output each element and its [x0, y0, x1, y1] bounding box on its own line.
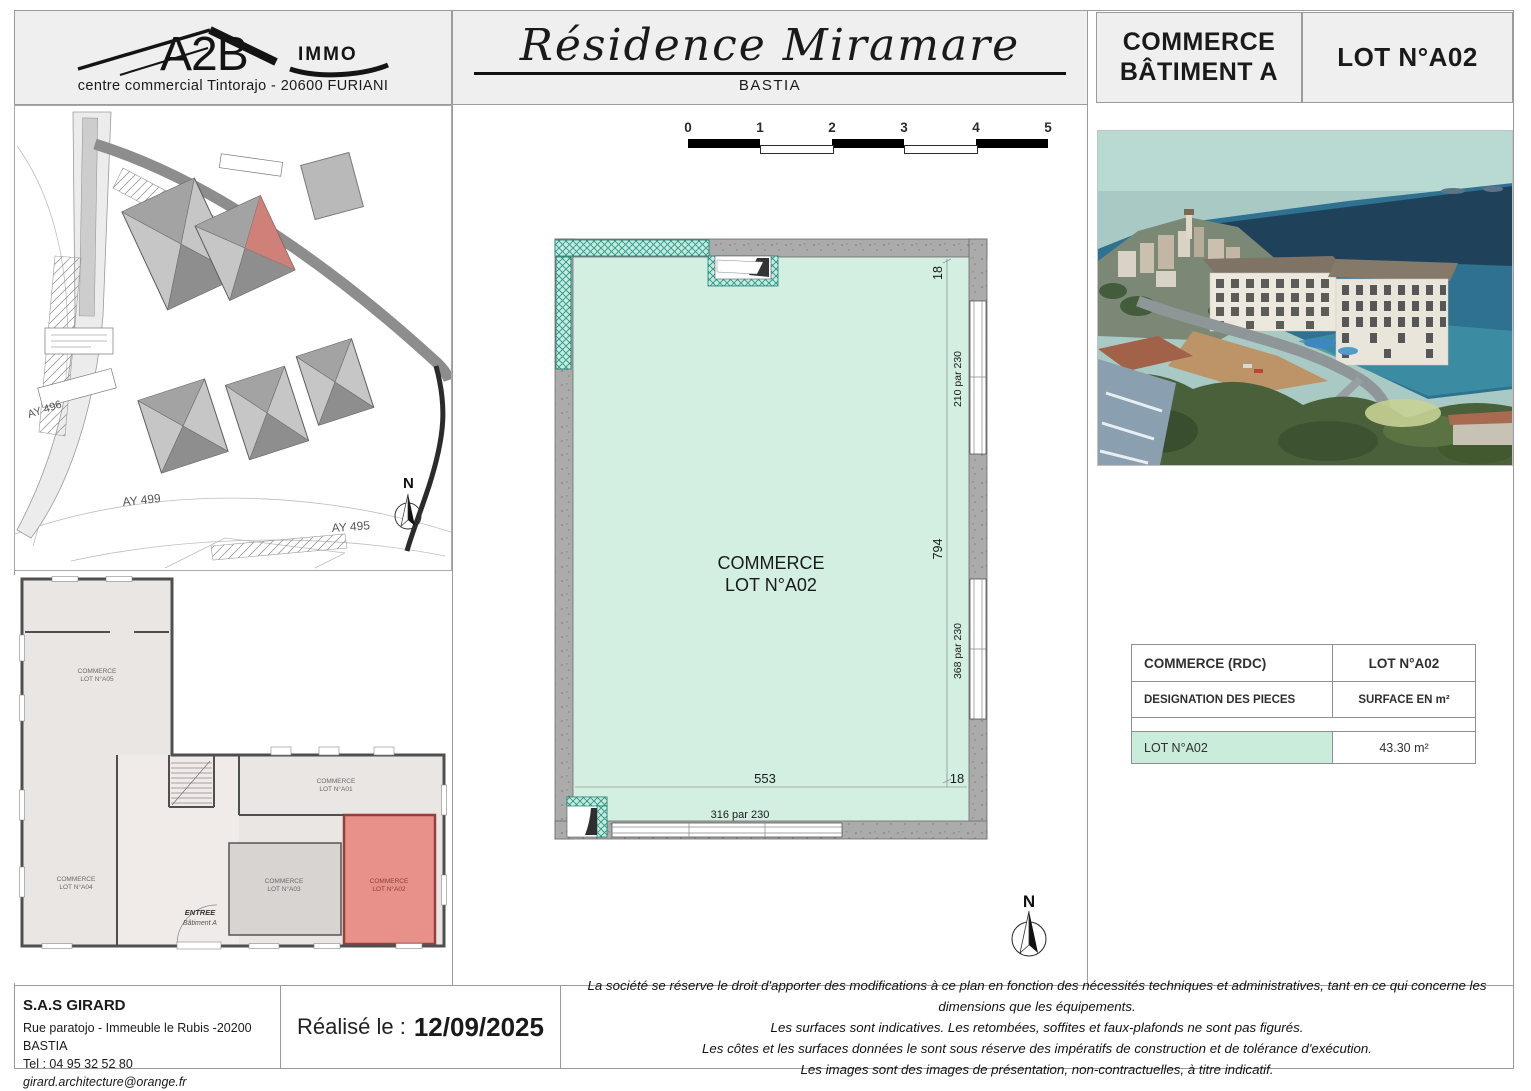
- label-a05-l2: LOT N°A05: [80, 675, 114, 683]
- render-sky: [1098, 131, 1513, 191]
- dim-794: 794: [931, 539, 945, 560]
- disclaimer-line-4: Les images sont des images de présentati…: [561, 1059, 1513, 1080]
- architect-email: girard.architecture@orange.fr: [23, 1073, 280, 1091]
- table-col-surface: SURFACE EN m²: [1332, 681, 1476, 718]
- architect-phone: Tel : 04 95 32 52 80: [23, 1055, 280, 1073]
- scale-seg-white-1: [760, 145, 834, 154]
- building-gray: [301, 152, 364, 219]
- date-block: Réalisé le : 12/09/2025: [280, 985, 561, 1069]
- window-right-top: [970, 301, 986, 454]
- project-3d-render: [1097, 130, 1513, 466]
- building-label-box: COMMERCE BÂTIMENT A: [1096, 12, 1302, 103]
- compass-needle-filled: [1029, 911, 1038, 953]
- table-title-left: COMMERCE (RDC): [1131, 644, 1333, 682]
- room-a05: [22, 579, 172, 755]
- project-title: Résidence Miramare: [520, 24, 1020, 68]
- label-a02-l1: COMMERCE: [370, 878, 409, 885]
- label-a01-l2: LOT N°A01: [319, 785, 353, 793]
- table-header-row: DESIGNATION DES PIECES SURFACE EN m²: [1131, 681, 1476, 718]
- project-title-panel: Résidence Miramare BASTIA: [452, 10, 1088, 105]
- label-a05-l1: COMMERCE: [78, 668, 117, 675]
- disclaimer-line-3: Les côtes et les surfaces données le son…: [561, 1038, 1513, 1059]
- lot-floor-area: [573, 257, 969, 821]
- compass-needle-outline: [1020, 911, 1029, 953]
- date-value: 12/09/2025: [414, 1012, 544, 1043]
- overview-plan-drawing: COMMERCE LOT N°A05 COMMERCE LOT N°A04 CO…: [14, 575, 452, 983]
- architect-address: Rue paratojo - Immeuble le Rubis -20200 …: [23, 1019, 280, 1055]
- logo-immo-text: IMMO: [298, 44, 358, 65]
- label-a04-l2: LOT N°A04: [59, 883, 93, 891]
- top-duct-notch: [708, 256, 778, 286]
- plan-north-label: N: [1023, 893, 1035, 911]
- window-label-368: 368 par 230: [952, 623, 964, 679]
- architect-company: S.A.S GIRARD: [23, 995, 280, 1017]
- scale-tick-3: 3: [900, 120, 908, 135]
- table-row: LOT N°A02 43.30 m²: [1131, 731, 1476, 764]
- table-cell-surface: 43.30 m²: [1332, 731, 1476, 764]
- table-title-row: COMMERCE (RDC) LOT N°A02: [1131, 644, 1476, 682]
- scale-tick-1: 1: [756, 120, 764, 135]
- plan-north-compass: N: [1003, 893, 1055, 965]
- architect-info-block: S.A.S GIRARD Rue paratojo - Immeuble le …: [14, 985, 281, 1069]
- label-a02-l2: LOT N°A02: [372, 885, 406, 893]
- scale-seg-black-1: [688, 139, 760, 148]
- lot-label: LOT N°A02: [1337, 42, 1478, 73]
- label-a03-l2: LOT N°A03: [267, 885, 301, 893]
- building-label-line1: COMMERCE: [1120, 28, 1278, 58]
- scale-seg-black-3: [976, 139, 1048, 148]
- entrance-label-1: ENTREE: [185, 908, 216, 917]
- window-bottom: [612, 823, 842, 837]
- column-divider-right: [1087, 10, 1088, 986]
- scale-bar: 0 1 2 3 4 5: [688, 120, 1052, 168]
- disclaimer-line-2: Les surfaces sont indicatives. Les retom…: [561, 1017, 1513, 1038]
- parcel-label-ay499: AY 499: [122, 491, 162, 509]
- hall: [117, 755, 239, 946]
- lot-label-box: LOT N°A02: [1302, 12, 1513, 103]
- site-plan-box: AY 496 AY 499 AY 495 N: [14, 105, 452, 571]
- room-label-line2: LOT N°A02: [725, 575, 817, 595]
- agency-address: centre commercial Tintorajo - 20600 FURI…: [78, 78, 389, 94]
- disclaimer-line-1: La société se réserve le droit d'apporte…: [561, 975, 1513, 1017]
- scale-tick-4: 4: [972, 120, 980, 135]
- dim-18-top: 18: [931, 266, 945, 280]
- table-cell-lot: LOT N°A02: [1131, 731, 1333, 764]
- scale-tick-0: 0: [684, 120, 692, 135]
- date-label: Réalisé le :: [297, 1014, 406, 1040]
- scale-seg-black-2: [832, 139, 904, 148]
- render-pool: [1304, 338, 1336, 348]
- site-plan-drawing: AY 496 AY 499 AY 495 N: [15, 106, 451, 570]
- corner-door-detail: [567, 797, 607, 837]
- render-illustration: [1098, 131, 1513, 465]
- main-floor-plan: COMMERCE LOT N°A02 18 794 210 par 230 36…: [545, 227, 995, 849]
- project-city: BASTIA: [739, 77, 801, 94]
- building-roof-4: [225, 366, 308, 459]
- logo-underline-swoosh: [290, 65, 388, 75]
- window-label-210: 210 par 230: [952, 351, 964, 407]
- table-gap-row: [1131, 718, 1476, 732]
- label-a03-l1: COMMERCE: [265, 878, 304, 885]
- dim-553: 553: [754, 771, 776, 786]
- window-right-bottom: [970, 579, 986, 719]
- scale-seg-white-2: [904, 145, 978, 154]
- overview-plan-box: COMMERCE LOT N°A05 COMMERCE LOT N°A04 CO…: [14, 575, 452, 983]
- parcel-label-ay495: AY 495: [331, 518, 370, 535]
- logo-brand-text: A2B: [160, 28, 248, 80]
- window-label-316: 316 par 230: [711, 809, 770, 821]
- scale-tick-2: 2: [828, 120, 836, 135]
- legal-disclaimer: La société se réserve le droit d'apporte…: [560, 985, 1514, 1069]
- entrance-label-2: Bâtiment A: [183, 920, 217, 927]
- column-divider-left: [452, 10, 453, 986]
- a2b-immo-logo: A2B IMMO: [68, 22, 398, 80]
- render-building-left: [1203, 256, 1348, 331]
- main-floor-plan-drawing: COMMERCE LOT N°A02 18 794 210 par 230 36…: [545, 227, 995, 849]
- scale-tick-5: 5: [1044, 120, 1052, 135]
- room-label-line1: COMMERCE: [718, 553, 825, 573]
- table-col-designation: DESIGNATION DES PIECES: [1131, 681, 1333, 718]
- title-underline: [474, 72, 1066, 75]
- table-title-right: LOT N°A02: [1332, 644, 1476, 682]
- label-a04-l1: COMMERCE: [57, 876, 96, 883]
- plan-sheet: A2B IMMO centre commercial Tintorajo - 2…: [0, 0, 1531, 1080]
- label-a01-l1: COMMERCE: [317, 778, 356, 785]
- surface-table: COMMERCE (RDC) LOT N°A02 DESIGNATION DES…: [1131, 645, 1476, 764]
- building-label-line2: BÂTIMENT A: [1120, 58, 1278, 88]
- building-roof-5: [296, 339, 373, 425]
- dim-18-bottom: 18: [950, 771, 964, 786]
- building-roof-3: [138, 379, 228, 473]
- site-north-label: N: [403, 475, 414, 492]
- agency-logo-panel: A2B IMMO centre commercial Tintorajo - 2…: [14, 10, 452, 105]
